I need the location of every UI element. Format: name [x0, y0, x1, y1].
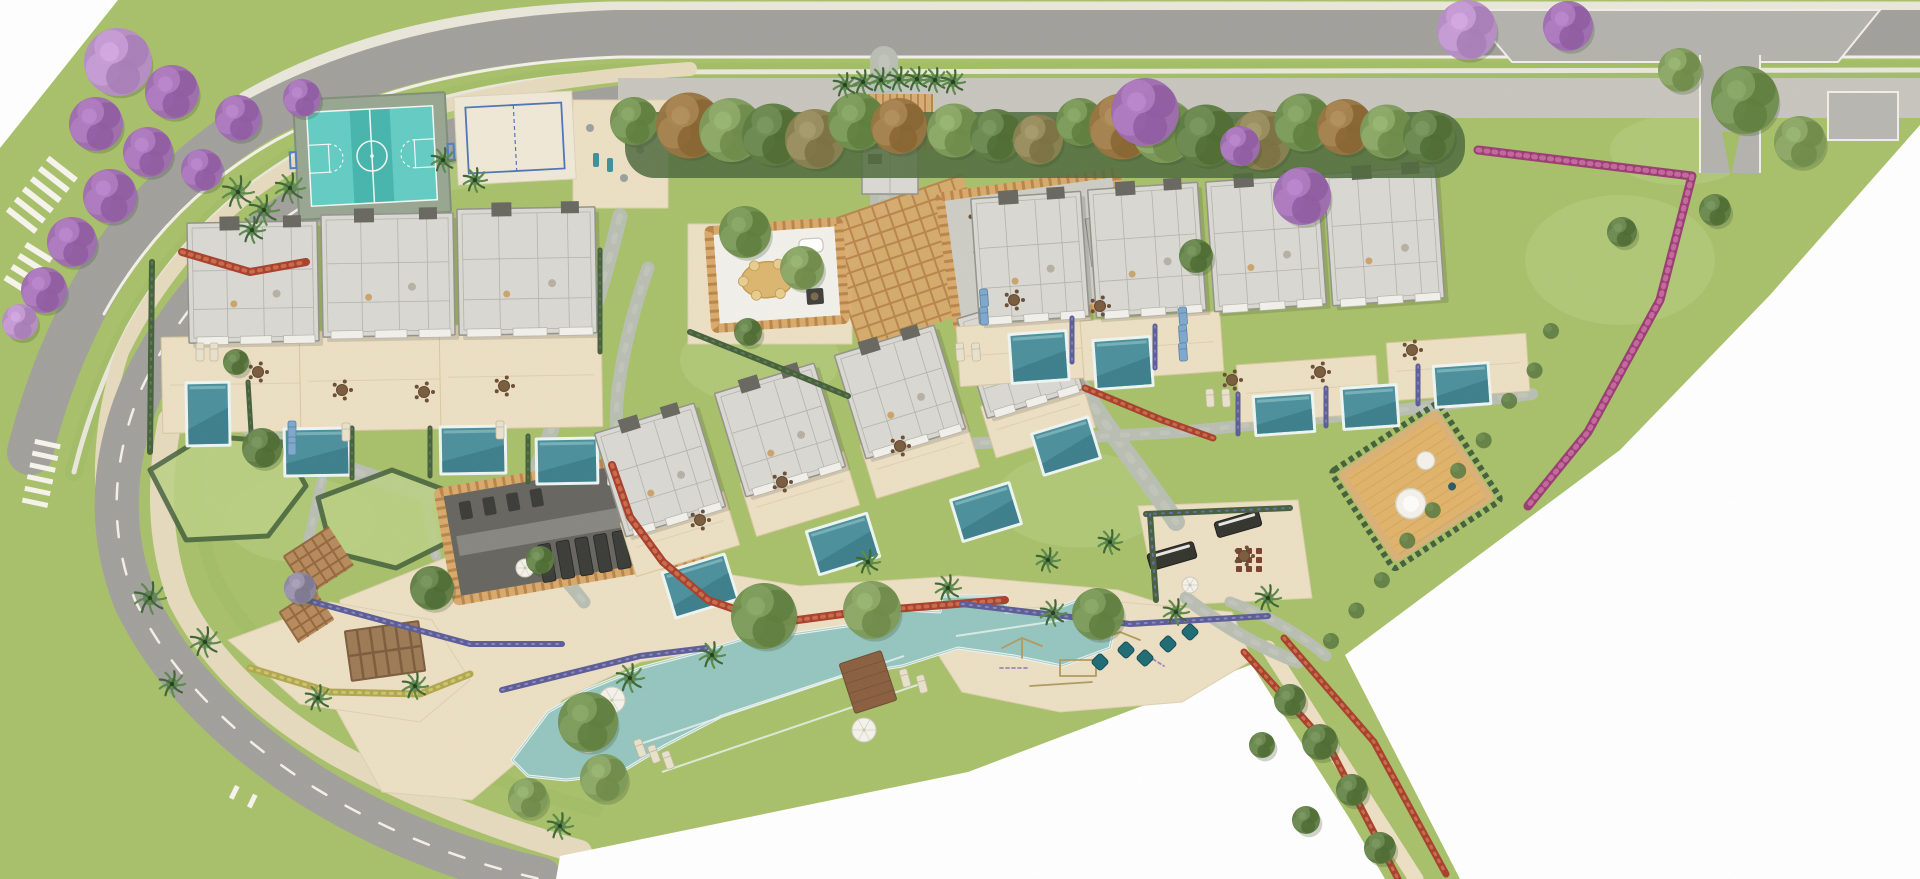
site-plan-canvas — [0, 0, 1920, 879]
site-plan — [0, 0, 1920, 879]
texture-overlay — [0, 0, 1920, 879]
